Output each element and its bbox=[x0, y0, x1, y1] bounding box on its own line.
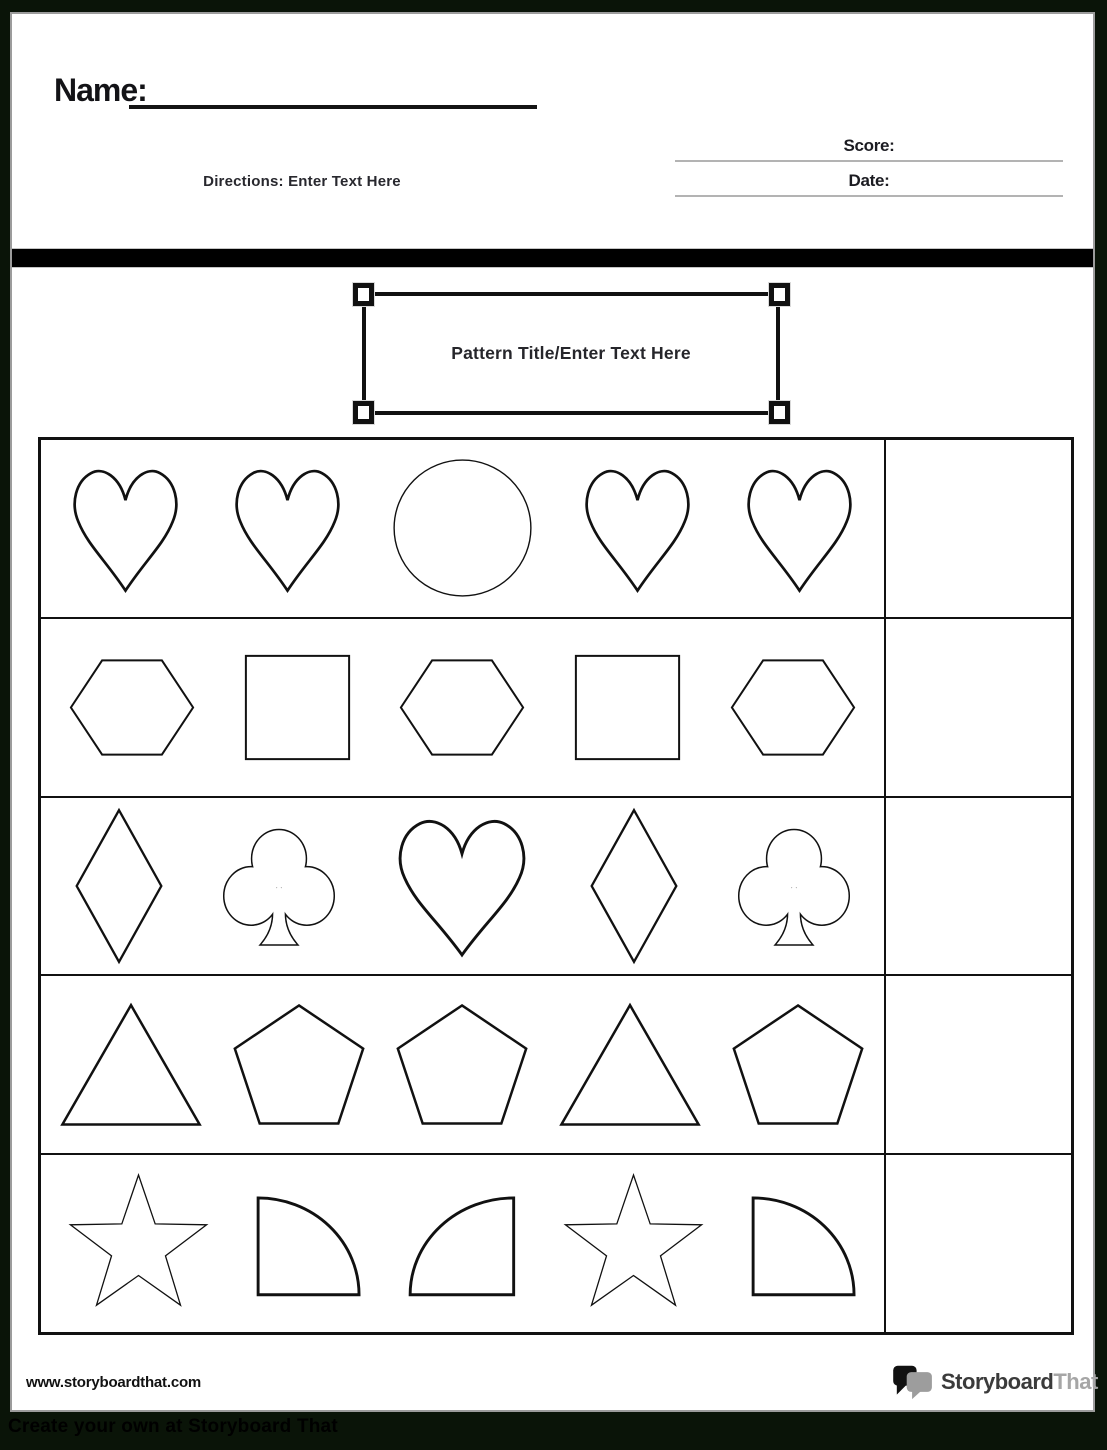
bottom-bar-text: Create your own at Storyboard That bbox=[8, 1416, 338, 1438]
worksheet-page: Name: Directions: Enter Text Here Score:… bbox=[10, 12, 1095, 1412]
pattern-row bbox=[41, 798, 1071, 977]
pattern-row-shapes bbox=[41, 976, 884, 1153]
speech-bubbles-icon bbox=[892, 1364, 934, 1400]
logo-text-primary: Storyboard bbox=[941, 1369, 1053, 1394]
shape-hexagon[interactable] bbox=[728, 654, 858, 761]
pattern-row-shapes bbox=[41, 1155, 884, 1332]
shape-square[interactable] bbox=[572, 652, 683, 763]
shape-heart[interactable] bbox=[742, 461, 857, 596]
score-date-block: Score: Date: bbox=[675, 136, 1063, 197]
logo-text-secondary: That bbox=[1053, 1369, 1097, 1394]
answer-cell[interactable] bbox=[884, 798, 1071, 975]
header-divider-bar bbox=[12, 248, 1093, 268]
pattern-row bbox=[41, 1155, 1071, 1332]
corner-handle-icon bbox=[353, 401, 374, 424]
shape-diamond[interactable] bbox=[73, 807, 165, 965]
pattern-row bbox=[41, 619, 1071, 798]
corner-handle-icon bbox=[353, 283, 374, 306]
shape-pentagon[interactable] bbox=[393, 1001, 531, 1128]
shape-pentagon[interactable] bbox=[230, 1001, 368, 1128]
shape-square[interactable] bbox=[242, 652, 353, 763]
shape-triangle[interactable] bbox=[58, 1000, 204, 1129]
name-label: Name: bbox=[54, 72, 147, 109]
shape-quarter-circle[interactable] bbox=[250, 1185, 366, 1303]
shape-star[interactable] bbox=[64, 1169, 213, 1319]
shape-star[interactable] bbox=[559, 1169, 708, 1319]
shape-circle[interactable] bbox=[392, 458, 533, 598]
answer-cell[interactable] bbox=[884, 976, 1071, 1153]
pattern-title-text: Pattern Title/Enter Text Here bbox=[451, 343, 691, 364]
shape-quarter-circle-mirrored[interactable] bbox=[403, 1185, 522, 1303]
date-write-line[interactable] bbox=[675, 195, 1063, 197]
pattern-row bbox=[41, 976, 1071, 1155]
shape-hexagon[interactable] bbox=[397, 654, 527, 761]
answer-cell[interactable] bbox=[884, 440, 1071, 617]
name-write-line[interactable] bbox=[129, 105, 537, 109]
pattern-row bbox=[41, 440, 1071, 619]
answer-cell[interactable] bbox=[884, 1155, 1071, 1332]
score-write-line[interactable] bbox=[675, 160, 1063, 162]
corner-handle-icon bbox=[769, 283, 790, 306]
directions-placeholder[interactable]: Directions: Enter Text Here bbox=[122, 173, 482, 190]
page-frame: Name: Directions: Enter Text Here Score:… bbox=[0, 0, 1107, 1450]
shape-heart[interactable] bbox=[230, 461, 345, 596]
date-label: Date: bbox=[675, 171, 1063, 191]
storyboardthat-logo: StoryboardThat bbox=[892, 1364, 1098, 1400]
shape-heart[interactable] bbox=[392, 810, 532, 961]
pattern-row-shapes bbox=[41, 440, 884, 617]
website-url: www.storyboardthat.com bbox=[26, 1374, 201, 1391]
pattern-row-shapes bbox=[41, 798, 884, 975]
pattern-row-shapes bbox=[41, 619, 884, 796]
shape-pentagon[interactable] bbox=[729, 1001, 867, 1128]
shape-quarter-circle[interactable] bbox=[745, 1185, 861, 1303]
shape-club[interactable] bbox=[736, 824, 852, 948]
shape-heart[interactable] bbox=[580, 461, 695, 596]
shape-hexagon[interactable] bbox=[67, 654, 197, 761]
shape-club[interactable] bbox=[221, 824, 337, 948]
pattern-table bbox=[38, 437, 1074, 1335]
pattern-title-box[interactable]: Pattern Title/Enter Text Here bbox=[362, 292, 780, 415]
answer-cell[interactable] bbox=[884, 619, 1071, 796]
shape-diamond[interactable] bbox=[588, 807, 680, 965]
score-label: Score: bbox=[675, 136, 1063, 156]
shape-triangle[interactable] bbox=[557, 1000, 703, 1129]
shape-heart[interactable] bbox=[68, 461, 183, 596]
corner-handle-icon bbox=[769, 401, 790, 424]
